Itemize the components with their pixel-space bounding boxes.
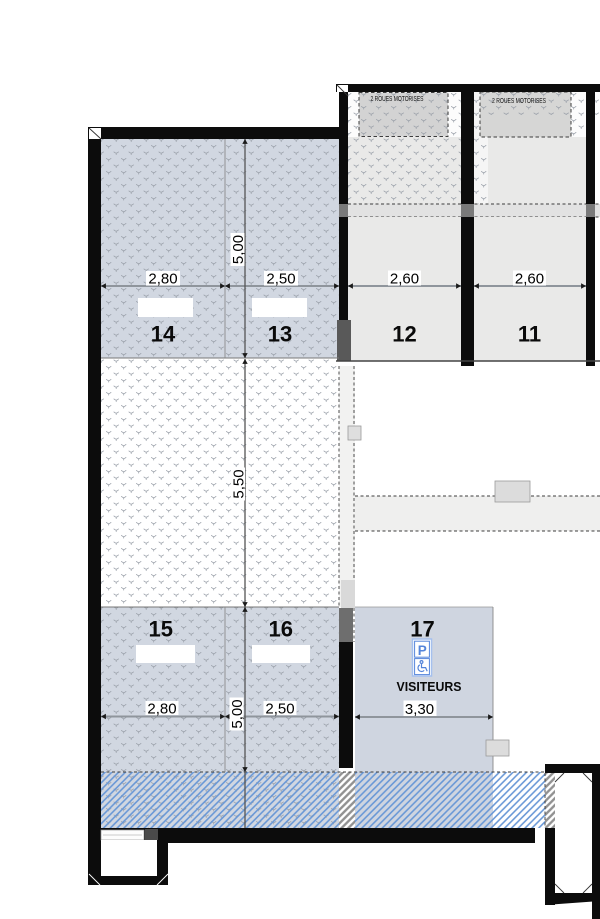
svg-text:5,00: 5,00 [230,235,247,264]
svg-text:2 ROUES MOTORISES: 2 ROUES MOTORISES [371,94,424,103]
svg-text:5,00: 5,00 [229,699,246,728]
svg-text:VISITEURS: VISITEURS [397,680,462,694]
svg-text:2,80: 2,80 [148,270,177,287]
svg-text:2 ROUES MOTORISES: 2 ROUES MOTORISES [492,96,546,105]
svg-text:14: 14 [151,322,176,347]
svg-text:16: 16 [268,617,292,642]
svg-text:2,80: 2,80 [147,701,176,718]
svg-text:15: 15 [148,617,172,642]
svg-text:13: 13 [268,322,292,347]
svg-text:5,50: 5,50 [230,469,247,498]
svg-text:2,60: 2,60 [390,270,419,287]
svg-text:P: P [418,643,427,658]
svg-text:2,50: 2,50 [266,270,295,287]
svg-text:11: 11 [518,322,541,347]
svg-text:12: 12 [392,322,416,347]
svg-text:2,60: 2,60 [515,270,544,287]
svg-text:2,50: 2,50 [265,701,294,718]
svg-text:3,30: 3,30 [405,701,434,718]
svg-text:17: 17 [410,617,434,642]
